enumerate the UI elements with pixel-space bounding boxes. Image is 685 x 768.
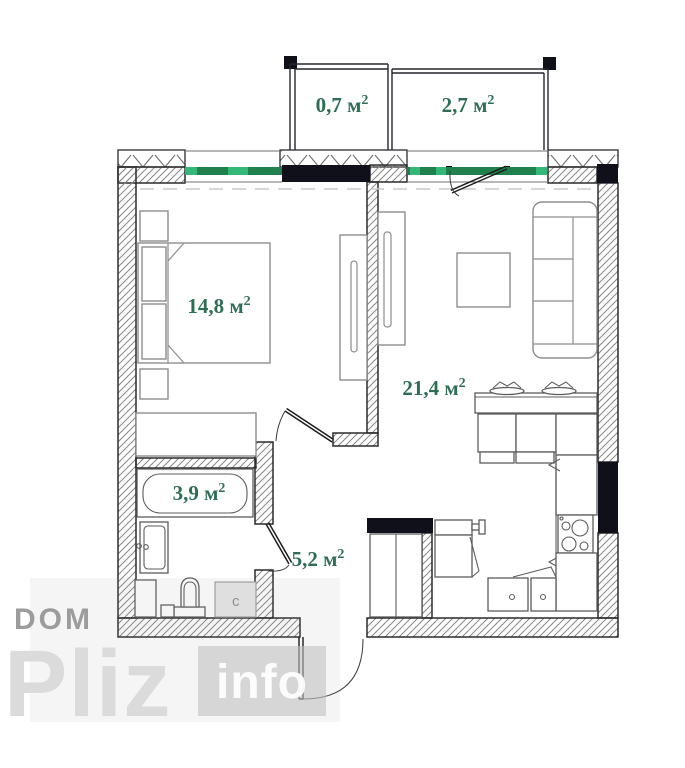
kitchen-fixtures (435, 382, 597, 611)
bathroom-area-label: 3,9 м2 (173, 481, 226, 505)
bar-counter (475, 393, 597, 413)
pillow (142, 304, 166, 359)
bedroom-door (276, 409, 334, 443)
refrigerator (435, 520, 485, 577)
kitchen-drawer (516, 452, 554, 463)
living-room-furniture (378, 202, 597, 358)
floor-plan-canvas: c 0,7 м2 2,7 м2 14,8 м2 21,4 м2 3,9 м2 5… (0, 0, 685, 768)
kitchen-cabinet (516, 414, 556, 452)
hallway-furniture (370, 534, 422, 617)
pillow (142, 247, 166, 301)
nightstand-top (140, 211, 168, 241)
floor-plan-page: c 0,7 м2 2,7 м2 14,8 м2 21,4 м2 3,9 м2 5… (0, 0, 685, 768)
kitchen-corner-cabinet (556, 414, 597, 455)
coffee-table (457, 253, 510, 307)
watermark-pliz-text: Pliz (4, 631, 172, 737)
bar-dish (490, 388, 524, 395)
watermark: DOM Pliz info (4, 578, 340, 737)
kitchen-tall-unit (556, 455, 597, 515)
nightstand-bottom (140, 369, 168, 399)
bedroom-area-label: 14,8 м2 (187, 294, 250, 318)
bedroom-tv-unit (340, 235, 367, 380)
balcony-small-area-label: 0,7 м2 (316, 93, 369, 117)
sink-cabinet (488, 578, 528, 611)
bathroom-door (266, 523, 292, 572)
sofa (533, 202, 597, 358)
kitchen-drawer (480, 452, 514, 463)
insulated-wall-bands (118, 150, 618, 167)
bar-dish (542, 388, 576, 395)
dresser (136, 413, 256, 456)
balcony-large-area-label: 2,7 м2 (442, 93, 495, 117)
kitchen-counter-lower (556, 553, 597, 611)
hallway-area-label: 5,2 м2 (292, 547, 345, 571)
living-kitchen-area-label: 21,4 м2 (402, 376, 465, 400)
watermark-info-text: info (216, 656, 308, 709)
bedroom-furniture (136, 211, 367, 456)
kitchen-cabinet (478, 414, 516, 452)
